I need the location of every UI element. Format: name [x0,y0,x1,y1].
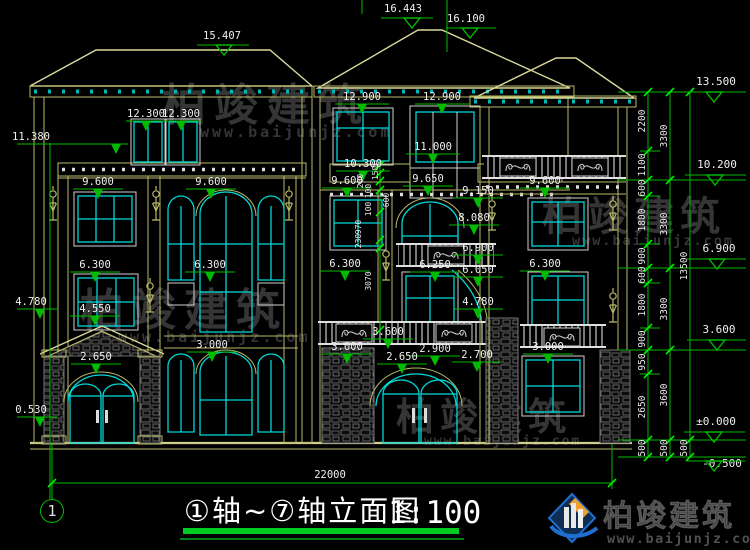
elevation-label: 11.380 [12,131,128,154]
svg-text:600: 600 [382,193,391,208]
svg-text:8.080: 8.080 [458,212,490,224]
svg-text:柏竣建筑: 柏竣建筑 [396,395,572,439]
svg-text:6.050: 6.050 [462,264,494,276]
svg-text:600: 600 [637,266,648,283]
elevation-label: 6.300 [185,259,235,282]
door-handle [424,408,427,423]
door-handle [105,410,108,423]
title-block: ①轴~⑦轴立面图 1:100 [180,494,481,539]
logo-bar-icon [578,509,583,528]
svg-text:3600: 3600 [659,383,670,406]
svg-text:12.300: 12.300 [162,108,200,120]
elevation-drawing: 柏竣建筑 www.baijunjz.com 柏竣建筑 www.baijunjz.… [0,0,750,550]
svg-text:2.650: 2.650 [386,351,418,363]
double-door [70,384,134,443]
title-underline [183,528,459,534]
svg-text:2.900: 2.900 [419,343,451,355]
svg-text:600: 600 [637,179,648,196]
arched-window [164,336,298,435]
window [74,192,136,246]
brand-url: www.baijunjz.com [607,531,750,547]
svg-text:11.380: 11.380 [12,131,50,143]
svg-text:3.600: 3.600 [702,323,735,336]
elevation-label: 4.780 [453,296,503,319]
svg-text:150: 150 [371,166,380,181]
svg-text:6.300: 6.300 [79,259,111,271]
elevation-label: -0.500 [686,457,745,471]
svg-text:15.407: 15.407 [203,30,241,42]
svg-text:6.900: 6.900 [462,242,494,254]
stone-pier [486,318,518,443]
svg-text:1800: 1800 [637,208,648,231]
door-handle [96,410,99,423]
svg-text:4.780: 4.780 [15,296,47,308]
svg-text:6.300: 6.300 [329,258,361,270]
stone-column [44,356,64,443]
svg-text:500: 500 [659,439,670,456]
cad-viewport: 柏竣建筑 www.baijunjz.com 柏竣建筑 www.baijunjz.… [0,0,750,550]
svg-text:2.700: 2.700 [461,349,493,361]
svg-text:6.300: 6.300 [194,259,226,271]
svg-text:9.600: 9.600 [529,175,561,187]
door-handle [412,408,415,423]
svg-text:2650: 2650 [637,395,648,418]
leader-lines [50,0,447,499]
window [528,272,588,330]
svg-text:13.500: 13.500 [696,75,736,88]
drawing-title: ①轴~⑦轴立面图 [184,494,421,528]
brand-logo: 柏竣建筑 www.baijunjz.com [549,494,750,547]
svg-text:3.000: 3.000 [196,339,228,351]
svg-text:9.150: 9.150 [462,185,494,197]
svg-text:1800: 1800 [637,293,648,316]
svg-text:3070: 3070 [364,271,373,290]
svg-text:11.000: 11.000 [414,141,452,153]
elevation-label: 15.407 [197,30,249,55]
left-wall [34,97,312,443]
svg-text:230: 230 [354,234,363,249]
logo-bar-icon [564,507,569,528]
elevation-label: 10.200 [685,158,746,185]
svg-text:100: 100 [364,184,373,199]
svg-text:12.300: 12.300 [127,108,165,120]
svg-text:4.550: 4.550 [79,303,111,315]
drawing-scale: 1:100 [388,495,481,531]
elevation-label: 9.600 [186,176,236,199]
svg-text:1100: 1100 [637,153,648,176]
svg-text:±0.000: ±0.000 [696,415,736,428]
axis-number: 1 [47,502,56,520]
svg-text:9.600: 9.600 [195,176,227,188]
svg-text:2.650: 2.650 [80,351,112,363]
svg-text:950: 950 [637,353,648,370]
svg-text:3.600: 3.600 [372,326,404,338]
elevation-label: 6.050 [453,264,503,287]
elevation-label: 3.600 [687,323,746,350]
svg-text:9.650: 9.650 [412,173,444,185]
svg-text:970: 970 [354,220,363,235]
elevation-label: 12.900 [415,91,469,114]
svg-text:100: 100 [364,202,373,217]
svg-text:13500: 13500 [679,251,690,280]
right-dimension-chains: 2200 1100 600 1800 900 600 1800 900 950 … [618,75,746,471]
svg-text:500: 500 [679,439,690,456]
svg-text:2200: 2200 [637,109,648,132]
svg-text:10.200: 10.200 [697,158,737,171]
elevation-label: 16.100 [446,13,496,38]
svg-text:6.300: 6.300 [529,258,561,270]
svg-text:4.780: 4.780 [462,296,494,308]
logo-bar-icon [571,503,576,528]
elevation-label: 6.300 [320,258,370,281]
svg-text:3300: 3300 [659,124,670,147]
svg-text:16.443: 16.443 [384,3,422,15]
svg-text:16.100: 16.100 [447,13,485,25]
svg-text:900: 900 [637,330,648,347]
svg-text:3.000: 3.000 [331,341,363,353]
svg-text:3300: 3300 [659,212,670,235]
svg-text:3300: 3300 [659,297,670,320]
svg-text:3.000: 3.000 [532,341,564,353]
elevation-label: 16.443 [381,3,433,28]
stone-pier [600,350,630,443]
elevation-label: 11.000 [406,141,460,164]
stone-column [140,356,160,443]
svg-text:0.530: 0.530 [15,404,47,416]
svg-text:12.900: 12.900 [423,91,461,103]
svg-text:9.600: 9.600 [82,176,114,188]
svg-text:6.900: 6.900 [702,242,735,255]
total-width-dim: 22000 [314,469,346,481]
elevation-label: 12.300 [126,108,166,131]
svg-text:500: 500 [637,439,648,456]
svg-text:12.900: 12.900 [343,91,381,103]
right-roof [474,58,634,98]
brand-name: 柏竣建筑 [603,499,735,534]
svg-text:900: 900 [637,247,648,264]
stone-pier [322,348,374,443]
elevation-label: 4.780 [15,296,57,319]
svg-text:6.250: 6.250 [419,259,451,271]
